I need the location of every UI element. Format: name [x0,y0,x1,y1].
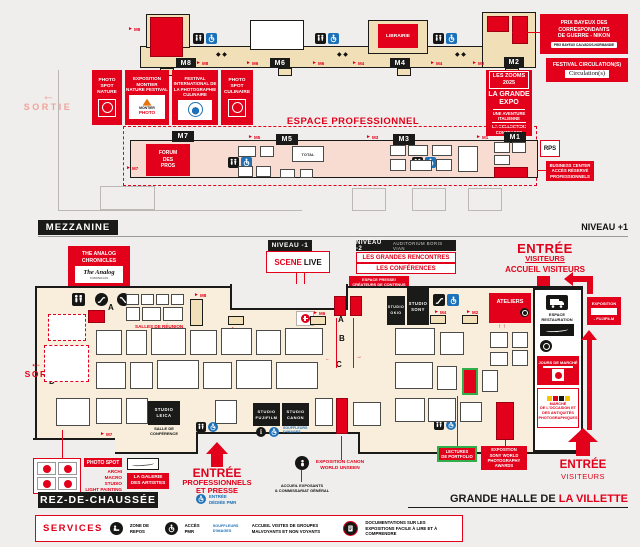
camera-spot-icon [552,369,564,381]
wc-icon [196,422,206,432]
booth [238,166,253,177]
direction-arrow-icon: ► [313,311,318,316]
marker-m4: M4 [390,58,410,68]
service-label: DOCUMENTATIONS SUR LES EXPOSITIONS FACIL… [365,520,455,537]
booth [142,307,161,321]
galerie-artistes-box: LA GALERIEDES ARTISTES [127,473,169,489]
studio-sony-box: STUDIOSONY [407,288,429,325]
booth [315,398,333,426]
wheelchair-icon [447,294,459,306]
booth [236,360,272,389]
direction-arrow-icon: ► [196,61,201,66]
long-arrow-shaft [587,340,592,430]
ateliers-arrows: ↑ ↑ [498,324,506,330]
direction-arrow-icon: ► [246,61,251,66]
wheelchair-icon [328,33,339,44]
direction-arrow-icon: ← [325,356,330,361]
rps-logo-box: RPS [540,140,560,157]
booth [126,398,148,424]
wayfinding-m4: ►M4 [352,61,364,66]
ghost-room [412,188,446,211]
core-arrow-left: ← [325,356,330,361]
montier-logo: MONTIER PHOTO [129,95,165,119]
connector [62,430,63,458]
marker-m2: M2 [504,57,524,67]
booth [44,345,89,382]
grandes-rencontres-box: LES GRANDES RENCONTRES [356,252,456,263]
booth [428,398,456,422]
photo-spot-list: ARCHIMACROSTUDIOLIGHT PAINTING [84,469,122,493]
circulations-logo: Circulation(s) [565,70,609,78]
booth [512,350,528,366]
booth [460,402,482,422]
wayfinding-m2: ►M2 [466,310,478,315]
booth [512,332,528,348]
booth-total: TOTAL [292,146,324,162]
hall-void-top [230,284,348,310]
photo-spot-icon [37,477,56,490]
wayfinding-m6: ►M6 [246,61,258,66]
expo-fujifilm-box: EXPOSITION - FUJIFILM [587,297,621,325]
direction-arrow-icon: ► [312,61,317,66]
photo-spot-icon [58,462,77,475]
connector [341,436,342,460]
booth [496,402,514,440]
rdc-section-label: REZ-DE-CHAUSSÉE [38,492,158,508]
service-label: ACCÈS PMR [185,523,206,534]
escalator-icon [95,293,108,306]
services-bar: SERVICES ZONE DE REPOS ACCÈS PMR SOUFFLE… [35,515,463,542]
ghost-room [352,188,386,211]
direction-arrow-icon: ► [366,135,371,140]
core-line [353,318,354,368]
corridor-room-center [250,20,304,50]
camera-icon [540,340,552,352]
entree-visiteurs-right-arrow-head [568,428,598,442]
librairie-room: LIBRAIRIE [378,24,418,48]
direction-arrow-icon: ► [434,310,439,315]
booth [350,296,362,316]
studio-fujifilm-box: STUDIOFUJIFILM [253,403,280,426]
pmr-service-icon [165,522,178,535]
festival-circulations-box: FESTIVAL CIRCULATION(S) Circulation(s) [546,58,628,82]
photo-spot-icon [58,477,77,490]
bent-arrow [587,276,593,294]
info-icon: i [256,427,266,437]
wayfinding-m7: ►M7 [100,432,112,437]
connector [301,470,302,482]
stair-stub [190,299,203,326]
marker-a: A [108,303,114,312]
booth [494,142,510,153]
ateliers-box: ATELIERS [489,293,531,323]
aperture-icon [520,308,529,317]
connector [512,32,540,33]
wc-icon [433,33,444,44]
fujifilm-title-band [591,308,617,315]
entree-visiteurs-right-arrow-shaft [576,442,590,456]
wc-icon [72,293,85,306]
easy-read-doc-icon [343,521,358,536]
booth [512,142,526,153]
marche-occasion-box: MARCHÉ DE L'OCCASION ET DES ANTIQUITÉS P… [537,388,579,428]
camera-spot-icon [98,99,116,117]
wayfinding-m6: ►M6 [313,311,325,316]
booth [238,146,256,157]
booth [300,169,313,178]
direction-arrow-icon: ► [352,61,357,66]
direction-arrow-icon: ► [430,61,435,66]
booth [276,362,318,389]
booth [190,330,217,355]
forum-des-pros-box: FORUMDESPROS [146,144,190,176]
booth [482,370,498,392]
pmr-entrance-icon [196,494,206,504]
m8-red-room [150,17,183,57]
prix-bayeux-box: PRIX BAYEUX DES CORRESPONDANTS DE GUERRE… [540,14,628,54]
exhibitor-desk-icon [295,456,309,470]
accueil-exposants-label: ACCUEIL EXPOSANTS& COMMISSARIAT GÉNÉRAL [272,483,332,494]
booth [260,146,274,157]
entree-visiteurs-top-sub: VISITEURS [516,254,574,263]
booth [440,332,464,355]
stair-stub [397,68,411,76]
studio-canon-box: STUDIOCANON [282,403,309,426]
direction-arrow-icon: ► [194,293,199,298]
booth [334,296,346,316]
stair-stub [228,316,244,325]
photo-spot-nature-box: PHOTOSPOTNATURE [92,70,122,125]
ghost-room [100,186,155,210]
wayfinding-m8: ►M8 [194,293,206,298]
booth [256,166,271,177]
festival-culinaire-box: FESTIVALINTERNATIONAL DELA PHOTOGRAPHIEC… [172,70,218,125]
bench-icon: ◆ ◆ [337,51,348,58]
marker-m6: M6 [270,58,290,68]
wayfinding-m7: ►M7 [126,166,138,171]
booth [151,328,186,355]
booth [490,352,508,366]
marker-b: B [339,334,345,343]
booth [163,307,183,321]
booth [436,159,452,171]
booth [126,294,139,305]
grande-halle-label: GRANDE HALLE DE LA VILLETTE [408,493,628,508]
analog-logo: The Analog CHRONICLES [75,266,123,283]
booth [462,368,478,395]
mezzanine-section-label: MEZZANINE [38,220,118,235]
wayfinding-m1: ►M1 [476,135,488,140]
bench-icon: ◆ ◆ [455,51,466,58]
conferences-box: LES CONFÉRENCES [356,263,456,274]
marker-m3: M3 [393,134,415,145]
direction-arrow-icon: ► [476,135,481,140]
entree-pmr-label: ENTRÉEDÉDIÉE PMR [209,494,249,505]
scene-live-box: SCENE LIVE [266,251,330,273]
espace-restauration-label: ESPACERESTAURATION [536,312,578,322]
wheelchair-icon [269,427,279,437]
prix-bayeux-logo: PRIX BAYEUX CALVADOS-NORMANDIE [551,42,617,48]
connector [457,396,458,446]
marker-a: A [338,315,344,324]
photo-spot-culinaire-box: PHOTOSPOTCULINAIRE [221,70,253,125]
stair-stub [278,68,292,76]
booth [494,167,528,178]
booth [215,400,237,424]
accueil-visiteurs-label: ACCUEIL VISITEURS [498,265,592,274]
wayfinding-m2: ►M2 [472,61,484,66]
souffleurs-logo: SOUFFLEURS D'IMAGES [213,524,245,533]
entree-visiteurs-right-title: ENTRÉE [552,459,614,471]
booth [56,398,90,426]
booth [96,362,126,389]
entree-pro-arrow-head [206,442,228,454]
booth [390,145,406,156]
booth [395,328,435,355]
expo-sony-box: EXPOSITIONSONY WORLDPHOTOGRAPHYAWARDS [481,446,527,470]
wheelchair-icon [206,33,217,44]
photo-spot-panel [33,458,81,494]
booth [96,330,122,355]
wc-icon [193,33,204,44]
niveau-moins1-tag: NIVEAU -1 [268,240,312,251]
culinaire-logo [178,100,212,120]
booth [156,294,169,305]
booth [203,362,232,389]
stair-stub [430,315,446,324]
wc-icon [315,33,326,44]
expo-montier-box: EXPOSITIONMONTIERNATURE FESTIVAL MONTIER… [125,70,169,125]
wayfinding-m4: ►M4 [430,61,442,66]
photo-spot-icon [37,462,56,475]
business-center-box: BUSINESS CENTERACCÈS RÉSERVÉPROFESSIONNE… [546,161,594,181]
booth [494,155,510,165]
bent-arrow-head [564,272,573,286]
booth [458,146,478,172]
wayfinding-m8: ►M8 [196,61,208,66]
service-label: ACCUEIL VISITES DE GROUPES MALVOYANTS ET… [252,523,337,534]
photo-spot-label: PHOTO SPOT [84,458,122,467]
marker-m7: M7 [172,131,194,142]
stair-stub [462,315,478,324]
marche-logo [547,396,570,401]
booth [353,402,381,426]
lectures-portfolio-box: LECTURESDE PORTFOLIO [437,446,477,462]
booth [256,330,281,355]
jours-marche-box: JOURS DE MARCHÉ [537,356,579,385]
booth [130,362,153,389]
booth [395,362,433,389]
booth [432,145,452,156]
booth [88,310,105,323]
souffleurs-logo: SOUFFLEURS D'IMAGES [283,426,317,435]
ghost-room [468,188,502,211]
services-title: SERVICES [43,523,103,534]
service-label: ZONE DE REPOS [130,523,158,534]
booth [437,366,457,390]
wayfinding-m8: ►M8 [128,27,140,32]
studio-leica-box: STUDIOLEICA [148,401,180,425]
booth [157,360,199,389]
salle-conference-label: SALLE DECONFÉRENCE [142,426,186,436]
rest-area-icon [110,522,123,535]
m2-red-room-b [512,16,528,44]
wayfinding-m5: ►M5 [248,135,260,140]
booth [390,159,406,171]
marker-m5: M5 [276,134,298,145]
core-arrow-right: → [356,354,362,360]
venue-map: LIBRAIRIE ◆ ◆ ◆ ◆ ◆ ◆ M8 M6 M4 M2 ►M8 ►M… [0,0,640,547]
studio-okio-box: STUDIOOKIO [387,296,405,325]
direction-arrow-icon: ► [466,310,471,315]
exit-arrow-icon: ← [30,356,42,370]
wayfinding-m6: ►M6 [312,61,324,66]
booth [410,160,432,171]
stair-stub [310,316,326,325]
booth [280,169,295,178]
booth [395,398,425,422]
booth [126,330,147,355]
level-divider [38,236,628,237]
camera-spot-icon [228,99,246,117]
wheelchair-icon [446,33,457,44]
restaurant-logo [540,324,574,336]
marker-m8: M8 [176,58,196,68]
booth [126,307,140,321]
m2-red-room-a [487,16,509,32]
hall-step-bottom-left [33,438,115,456]
long-arrow-head [581,330,597,340]
booth [336,398,348,434]
direction-arrow-icon: ► [248,135,253,140]
booth [96,398,122,424]
bench-icon: ◆ ◆ [216,51,227,58]
expo-canon-label: EXPOSITION CANONWORLD UNSEEN [314,460,366,473]
analog-chronicles-box: THE ANALOGCHRONICLES The Analog CHRONICL… [68,246,130,288]
connector [537,170,546,171]
food-truck-icon [546,295,568,310]
direction-arrow-icon: ► [126,166,131,171]
booth [490,332,508,348]
booth [171,294,184,305]
wayfinding-m4: ►M4 [434,310,446,315]
niveau-moins2-tag: NIVEAU -2 AUDITORIUM BORIS VIAN [356,240,456,251]
entree-visiteurs-right-sub: VISITEURS [552,472,614,481]
direction-arrow-icon: ► [128,27,133,32]
sortie-mezzanine-label: SORTIE [12,102,84,112]
galerie-logo [127,458,159,470]
niveau-plus1-label: NIVEAU +1 [545,222,628,232]
escalator-icon [433,294,445,306]
exit-arrow-icon: ← [42,88,55,103]
wayfinding-m3: ►M3 [366,135,378,140]
booth [48,314,86,341]
direction-arrow-icon: ► [100,432,105,437]
booth [408,145,428,156]
booth [141,294,154,305]
booth [221,328,252,355]
direction-arrow-icon: ► [472,61,477,66]
booth [285,328,323,355]
core-line [336,318,337,368]
